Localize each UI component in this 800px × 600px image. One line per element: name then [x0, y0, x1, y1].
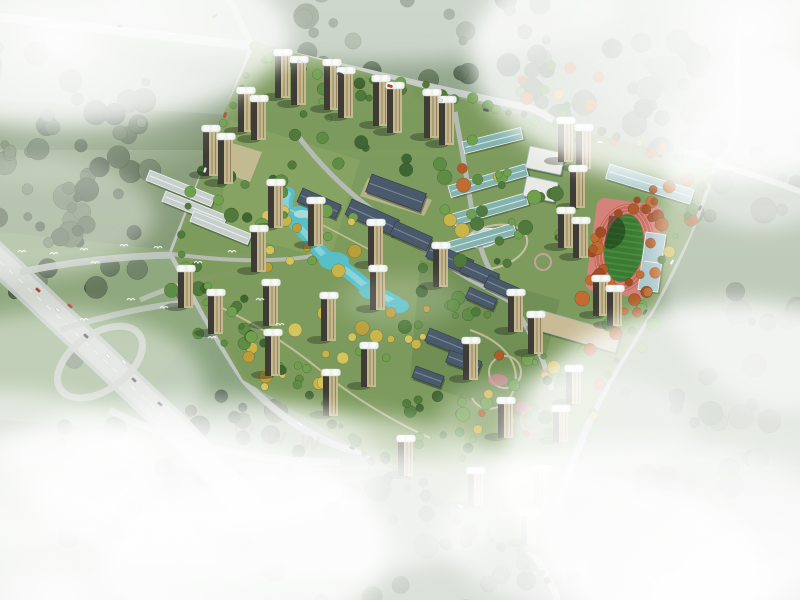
tree — [308, 256, 317, 265]
tree — [266, 246, 275, 255]
tower-facade — [257, 230, 266, 272]
tower-facade — [314, 202, 323, 246]
tree — [227, 307, 237, 317]
tree — [224, 208, 238, 222]
tree — [643, 287, 652, 296]
tree — [322, 350, 330, 358]
tree — [164, 283, 178, 297]
tree — [355, 90, 366, 101]
tree — [440, 205, 450, 215]
tree — [456, 178, 470, 192]
vignette-top-left — [0, 0, 270, 200]
tree — [177, 231, 185, 239]
tree — [418, 263, 428, 273]
tower-shaded-side — [265, 334, 271, 376]
rooftop-structure — [433, 89, 439, 95]
tower-facade — [374, 224, 383, 266]
tree — [323, 232, 332, 241]
tree — [300, 111, 307, 118]
tower-shaded-side — [263, 284, 269, 326]
rooftop-structure — [370, 342, 376, 348]
tree — [437, 170, 452, 185]
rooftop-structure — [382, 75, 388, 81]
tree — [239, 324, 245, 330]
rooftop-structure — [264, 279, 270, 285]
tree — [246, 331, 258, 343]
rooftop-structure — [347, 67, 353, 73]
rooftop-structure — [371, 265, 377, 271]
tower-shaded-side — [178, 270, 184, 308]
tree — [294, 362, 302, 370]
tree — [503, 169, 511, 177]
tower-facade — [297, 61, 306, 105]
tower-shaded-side — [323, 374, 329, 416]
tree — [453, 254, 467, 268]
rooftop-structure — [608, 285, 614, 291]
tree — [293, 380, 302, 389]
rooftop-structure — [448, 96, 454, 102]
rooftop-structure — [616, 285, 622, 291]
tower-facade — [367, 347, 376, 387]
tree — [494, 258, 500, 264]
rooftop-structure — [324, 369, 330, 375]
tree — [370, 330, 383, 343]
tree — [414, 396, 422, 404]
tree — [355, 136, 368, 149]
tree — [178, 251, 185, 258]
tree — [348, 218, 355, 225]
tower-facade — [274, 184, 283, 228]
tower-shaded-side — [251, 230, 257, 272]
tree — [484, 311, 491, 318]
tree — [333, 158, 345, 170]
tower-facade — [214, 294, 223, 334]
rooftop-structure — [374, 75, 380, 81]
tree — [243, 351, 255, 363]
tree — [575, 291, 590, 306]
tree — [444, 214, 457, 227]
rooftop-structure — [322, 292, 328, 298]
vignette-top-right — [540, 0, 800, 200]
tree — [204, 282, 212, 290]
tower-facade — [469, 342, 478, 380]
tower-shaded-side — [373, 80, 379, 126]
vignette-bottom-left — [0, 430, 280, 600]
tree — [348, 333, 356, 341]
tree — [348, 244, 362, 258]
tree — [472, 174, 483, 185]
rooftop-structure — [464, 337, 470, 343]
rooftop-structure — [396, 82, 402, 88]
tower-shaded-side — [308, 202, 314, 246]
tree — [541, 353, 547, 359]
tree — [614, 209, 622, 217]
tree — [332, 264, 346, 278]
tree — [402, 399, 411, 408]
tower-shaded-side — [361, 347, 367, 387]
pond-glint — [294, 210, 310, 218]
aerial-masterplan-rendering: WWW — [0, 0, 800, 600]
tower-shaded-side — [424, 94, 430, 138]
rooftop-structure — [260, 225, 266, 231]
rooftop-structure — [209, 289, 215, 295]
rooftop-structure — [594, 275, 600, 281]
tree — [420, 334, 426, 340]
rooftop-structure — [517, 289, 523, 295]
tree — [416, 404, 424, 412]
tower-facade — [269, 284, 278, 326]
tree — [337, 352, 349, 364]
tree — [240, 295, 248, 303]
rooftop-structure — [574, 217, 580, 223]
tree — [127, 259, 148, 280]
rooftop-structure — [567, 207, 573, 213]
rooftop-structure — [317, 197, 323, 203]
tree — [494, 351, 504, 361]
rooftop-structure — [332, 369, 338, 375]
tower-facade — [184, 270, 193, 308]
rooftop-structure — [266, 329, 272, 335]
tree — [432, 391, 443, 402]
tree — [454, 66, 469, 81]
tower-shaded-side — [338, 72, 344, 118]
tree — [495, 236, 504, 245]
rooftop-structure — [509, 289, 515, 295]
tower-facade — [564, 212, 573, 248]
tree — [405, 335, 413, 343]
tower-shaded-side — [558, 212, 564, 248]
rooftop-structure — [179, 265, 185, 271]
tower-facade — [579, 222, 588, 258]
tree — [498, 181, 505, 188]
tree — [467, 135, 478, 146]
tower-facade — [534, 316, 543, 354]
rooftop-structure — [379, 265, 385, 271]
tree — [261, 383, 269, 391]
tower-facade — [327, 297, 336, 341]
tower-shaded-side — [208, 294, 214, 334]
tree — [242, 213, 252, 223]
tower-facade — [439, 247, 448, 287]
tree — [221, 340, 228, 347]
rooftop-structure — [442, 242, 448, 248]
rooftop-structure — [369, 219, 375, 225]
tower-facade — [393, 87, 402, 133]
tree — [457, 163, 467, 173]
tree — [302, 364, 311, 373]
rooftop-structure — [330, 292, 336, 298]
rooftop-structure — [277, 179, 283, 185]
tree — [355, 321, 370, 336]
tower-shaded-side — [607, 290, 613, 326]
rooftop-structure — [472, 337, 478, 343]
tower-shaded-side — [324, 64, 330, 110]
tree — [645, 238, 655, 248]
tree — [305, 391, 313, 399]
tree — [471, 307, 480, 316]
tree — [452, 312, 458, 318]
tree — [402, 154, 412, 164]
tree — [317, 132, 329, 144]
rooftop-structure — [274, 329, 280, 335]
tree — [422, 81, 429, 88]
tower-facade — [445, 101, 454, 145]
rooftop-structure — [377, 219, 383, 225]
tree — [503, 259, 512, 268]
tower-shaded-side — [528, 316, 534, 354]
tree — [289, 129, 301, 141]
rooftop-structure — [217, 289, 223, 295]
tree — [625, 278, 633, 286]
fog-patch — [340, 275, 460, 325]
tree — [636, 271, 644, 279]
tower-shaded-side — [291, 61, 297, 105]
tree — [382, 354, 390, 362]
tree — [312, 69, 322, 79]
tree — [387, 335, 394, 342]
tree — [466, 209, 476, 219]
rendering-canvas: WWW — [0, 0, 800, 600]
tree — [286, 257, 294, 265]
tree — [532, 359, 537, 364]
rooftop-structure — [602, 275, 608, 281]
tree — [476, 205, 487, 216]
tree — [495, 171, 502, 178]
tree — [595, 227, 606, 238]
tree — [366, 95, 373, 102]
rooftop-structure — [187, 265, 193, 271]
vignette-bottom-right — [520, 420, 800, 600]
tree — [292, 223, 301, 232]
tower-facade — [514, 294, 523, 332]
tower-shaded-side — [387, 87, 393, 133]
tree — [527, 190, 541, 204]
tree — [508, 218, 515, 225]
tree — [185, 203, 192, 210]
tower-facade — [344, 72, 353, 118]
tower-facade — [329, 374, 338, 416]
rooftop-structure — [434, 242, 440, 248]
rooftop-structure — [529, 311, 535, 317]
tree — [288, 323, 302, 337]
tree — [85, 276, 107, 298]
rooftop-structure — [252, 225, 258, 231]
tree — [642, 205, 651, 214]
tower-shaded-side — [439, 101, 445, 145]
tower-shaded-side — [508, 294, 514, 332]
tree — [468, 93, 479, 104]
tree — [589, 245, 598, 254]
rooftop-structure — [559, 207, 565, 213]
tower-shaded-side — [573, 222, 579, 258]
tree — [518, 220, 533, 235]
rooftop-structure — [362, 342, 368, 348]
tree — [455, 223, 470, 238]
tower-shaded-side — [368, 224, 374, 266]
rooftop-structure — [582, 217, 588, 223]
rooftop-structure — [537, 311, 543, 317]
tree — [628, 204, 639, 215]
rooftop-structure — [425, 89, 431, 95]
tree — [354, 78, 365, 89]
tree — [411, 339, 421, 349]
tree — [433, 157, 446, 170]
tower-facade — [271, 334, 280, 376]
rooftop-structure — [339, 67, 345, 73]
tree — [399, 163, 413, 177]
tower-shaded-side — [593, 280, 599, 316]
rooftop-structure — [309, 197, 315, 203]
tower-shaded-side — [321, 297, 327, 341]
rooftop-structure — [272, 279, 278, 285]
tower-shaded-side — [463, 342, 469, 380]
tree — [288, 161, 297, 170]
